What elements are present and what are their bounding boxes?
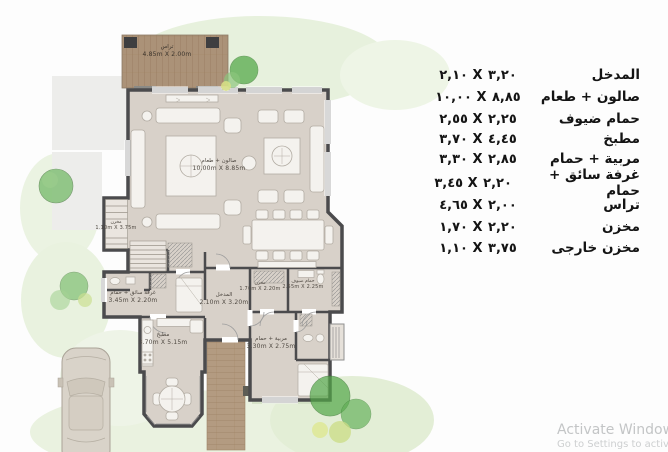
room-name: تراس bbox=[603, 197, 640, 213]
legend-row-kitchen: ٣,٧٠ X ٤,٤٥ مطبخ bbox=[424, 130, 640, 148]
room-dimensions: ٢,٥٥ X ٢,٢٥ bbox=[424, 112, 532, 127]
room-dimensions: ١,١٠ X ٣,٧٥ bbox=[424, 241, 532, 256]
room-name: صالون + طعام bbox=[541, 89, 640, 105]
bay-window-box bbox=[330, 324, 344, 360]
tree-icon bbox=[39, 169, 73, 203]
terrace-deck bbox=[122, 35, 228, 91]
room-name: حمام ضيوف bbox=[559, 111, 640, 127]
room-dimensions: ٢,١٠ X ٣,٢٠ bbox=[424, 68, 532, 83]
room-dimensions: ١,٧٠ X ٢,٢٠ bbox=[424, 220, 532, 235]
legend-row-nanny-bath: ٣,٣٠ X ٢,٨٥ مربية + حمام bbox=[424, 150, 640, 168]
legend-row-external-storage: ١,١٠ X ٣,٧٥ مخزن خارجى bbox=[424, 239, 640, 257]
legend-row-driver-bath: ٣,٤٥ X ٢,٢٠ غرفة سائق + حمام bbox=[424, 174, 640, 192]
stairs bbox=[130, 241, 192, 271]
floor-plan-page: تراس 4.85m X 2.00m صالون + طعام 10.00m X… bbox=[0, 0, 668, 452]
legend-row-storage: ١,٧٠ X ٢,٢٠ مخزن bbox=[424, 218, 640, 236]
room-name: مربية + حمام bbox=[550, 151, 640, 167]
room-name: مخزن bbox=[602, 219, 640, 235]
room-dimensions: ٣,٧٠ X ٤,٤٥ bbox=[424, 132, 532, 147]
room-dimensions: ٤,٦٥ X ٢,٠٠ bbox=[424, 198, 532, 213]
entry-walkway bbox=[207, 340, 245, 450]
room-dimensions: ٣,٤٥ X ٢,٢٠ bbox=[424, 176, 522, 191]
room-name: مخزن خارجى bbox=[551, 240, 640, 256]
legend-row-terrace: ٤,٦٥ X ٢,٠٠ تراس bbox=[424, 196, 640, 214]
room-name: غرفة سائق + حمام bbox=[522, 167, 640, 199]
room-name: مطبخ bbox=[603, 131, 640, 147]
room-name: المدخل bbox=[592, 67, 640, 83]
legend-row-salon-dining: ١٠,٠٠ X ٨,٨٥ صالون + طعام bbox=[424, 88, 640, 106]
room-dimensions: ١٠,٠٠ X ٨,٨٥ bbox=[424, 90, 532, 105]
car-top-view bbox=[58, 348, 114, 452]
shelf-lines bbox=[106, 200, 128, 249]
legend-row-entrance: ٢,١٠ X ٣,٢٠ المدخل bbox=[424, 66, 640, 84]
legend-row-guest-bath: ٢,٥٥ X ٢,٢٥ حمام ضيوف bbox=[424, 110, 640, 128]
room-dimensions: ٣,٣٠ X ٢,٨٥ bbox=[424, 152, 532, 167]
